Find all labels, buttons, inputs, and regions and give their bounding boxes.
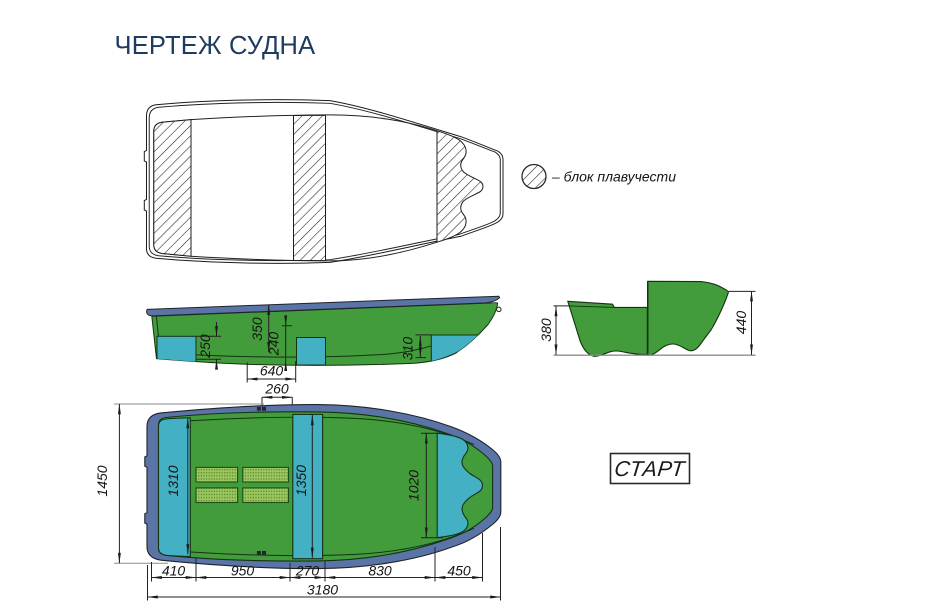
svg-text:440: 440: [733, 311, 749, 335]
svg-text:СТАРТ: СТАРТ: [613, 456, 687, 481]
svg-text:ЧЕРТЕЖ СУДНА: ЧЕРТЕЖ СУДНА: [115, 32, 316, 60]
svg-text:310: 310: [400, 337, 416, 361]
svg-text:1310: 1310: [165, 465, 181, 496]
svg-text:250: 250: [197, 334, 213, 359]
svg-text:240: 240: [266, 332, 282, 357]
svg-text:830: 830: [368, 563, 392, 579]
svg-text:950: 950: [231, 563, 255, 579]
svg-text:350: 350: [249, 317, 265, 341]
svg-text:410: 410: [162, 563, 186, 579]
svg-text:1350: 1350: [293, 465, 309, 496]
svg-text:260: 260: [264, 381, 289, 397]
svg-text:1020: 1020: [406, 470, 422, 501]
svg-text:450: 450: [447, 563, 471, 579]
svg-text:380: 380: [538, 318, 554, 342]
svg-text:640: 640: [260, 363, 284, 379]
svg-text:1450: 1450: [94, 465, 110, 496]
svg-text:3180: 3180: [307, 582, 338, 598]
svg-text:– блок плавучести: – блок плавучести: [551, 169, 676, 185]
svg-text:270: 270: [295, 563, 320, 579]
